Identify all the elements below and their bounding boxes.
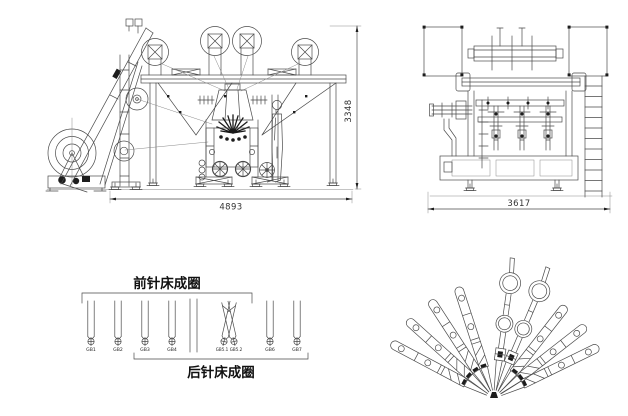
drawing-svg: 4893 3348	[0, 0, 628, 416]
warp-beam	[292, 39, 319, 76]
warp-beam	[142, 39, 169, 76]
fabric-takeup-unit	[46, 118, 106, 192]
guide-bar-fan-detail	[389, 257, 601, 399]
front-view: 4893 3348	[46, 19, 361, 213]
front-shaft-protrusion	[430, 101, 473, 156]
needle-bed-divider	[190, 299, 197, 352]
beam-stand-left	[423, 26, 464, 77]
guide-bar-diagram: 前针床成圈 GB1 GB2 GB3 GB4 GB5.1	[82, 275, 308, 381]
back-needle-bed-bracket: 后针床成圈	[134, 353, 308, 381]
fan-pivot	[490, 392, 498, 398]
guide-bar-label: GB6	[265, 347, 275, 353]
side-depth-dimension-text: 3617	[507, 199, 530, 209]
access-ladder	[585, 76, 602, 197]
guide-bar-gb7: GB7	[292, 301, 302, 353]
guide-bar-fan-icon	[217, 115, 249, 133]
guide-bar-label: GB2	[113, 347, 123, 353]
guide-bar-label: GB4	[167, 347, 177, 353]
warp-beam	[201, 27, 230, 76]
side-mechanism	[476, 97, 564, 168]
fan-arm-left-3	[404, 317, 491, 396]
side-depth-dimension: 3617	[428, 192, 610, 213]
guide-bar-gb6: GB6	[265, 301, 275, 353]
guide-bar-label: GB3	[140, 347, 150, 353]
beam-stand-right	[568, 26, 609, 77]
fan-arm-tension-1	[485, 257, 524, 392]
back-needle-bed-label: 后针床成圈	[187, 364, 255, 381]
machine-drawing-sheet: 4893 3348	[0, 0, 628, 416]
takeup-roller	[213, 162, 228, 177]
takeup-roller	[236, 162, 251, 177]
front-needle-bed-label: 前针床成圈	[133, 275, 201, 292]
guide-bar-label: GB5.1	[216, 347, 229, 352]
fan-arm-left-1	[454, 286, 496, 392]
guide-bar-gb4: GB4	[167, 301, 177, 353]
fan-arm-right-1	[495, 303, 569, 394]
front-width-dimension: 4893	[110, 191, 352, 213]
knitting-assembly	[488, 106, 504, 150]
side-view: 3617	[423, 26, 612, 213]
top-beam-cylinder	[468, 28, 563, 70]
guide-bar-gb2: GB2	[113, 301, 123, 353]
knitting-assembly	[540, 106, 556, 150]
front-needle-bed-bracket: 前针床成圈	[82, 275, 252, 303]
guide-bar-gb3: GB3	[140, 301, 150, 353]
front-height-dimension: 3348	[330, 26, 361, 189]
guide-bar-gb1: GB1	[86, 301, 96, 353]
knitting-head	[198, 84, 275, 180]
knitting-assembly	[514, 106, 530, 150]
side-frame	[440, 73, 586, 191]
guide-bar-label: GB7	[292, 347, 302, 353]
warp-beam	[233, 27, 262, 76]
front-width-dimension-text: 4893	[219, 203, 242, 213]
guide-bar-label: GB5.2	[230, 347, 243, 352]
guide-bar-label: GB1	[86, 347, 96, 353]
front-height-dimension-text: 3348	[344, 99, 354, 122]
fan-arm-left-2	[427, 298, 494, 394]
